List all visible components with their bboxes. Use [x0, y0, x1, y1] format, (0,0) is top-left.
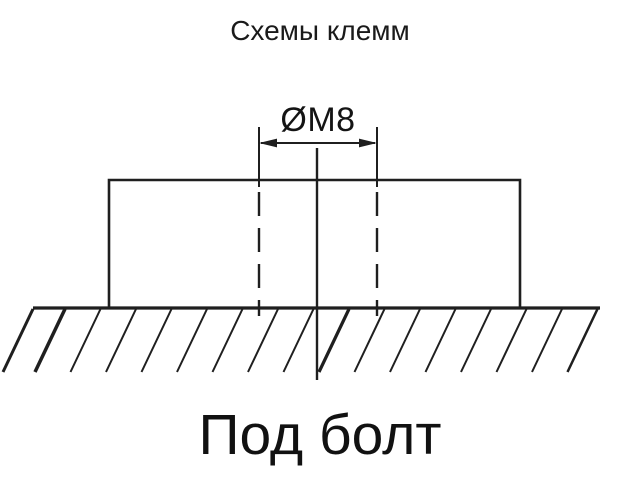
hatch-line [284, 309, 314, 372]
ground-hatching [3, 309, 598, 372]
hatch-line [71, 309, 101, 372]
terminal-body-outline [109, 180, 520, 308]
hatch-line [355, 309, 385, 372]
hatch-line [532, 309, 562, 372]
hatch-line [461, 309, 491, 372]
hatch-line [106, 309, 136, 372]
hatch-line [390, 309, 420, 372]
drawing-canvas: Схемы клемм [0, 0, 640, 480]
hatch-line [3, 309, 33, 372]
dimension-label: ØM8 [280, 103, 355, 137]
dimension-arrowhead-left [259, 139, 277, 148]
hatch-line [426, 309, 456, 372]
hatch-line [35, 309, 65, 372]
hatch-line [319, 309, 349, 372]
hatch-line [568, 309, 598, 372]
hatch-line [142, 309, 172, 372]
hatch-line [213, 309, 243, 372]
caption-text: Под болт [0, 407, 640, 464]
hatch-line [177, 309, 207, 372]
hatch-line [248, 309, 278, 372]
dimension-arrowhead-right [359, 139, 377, 148]
hatch-line [497, 309, 527, 372]
